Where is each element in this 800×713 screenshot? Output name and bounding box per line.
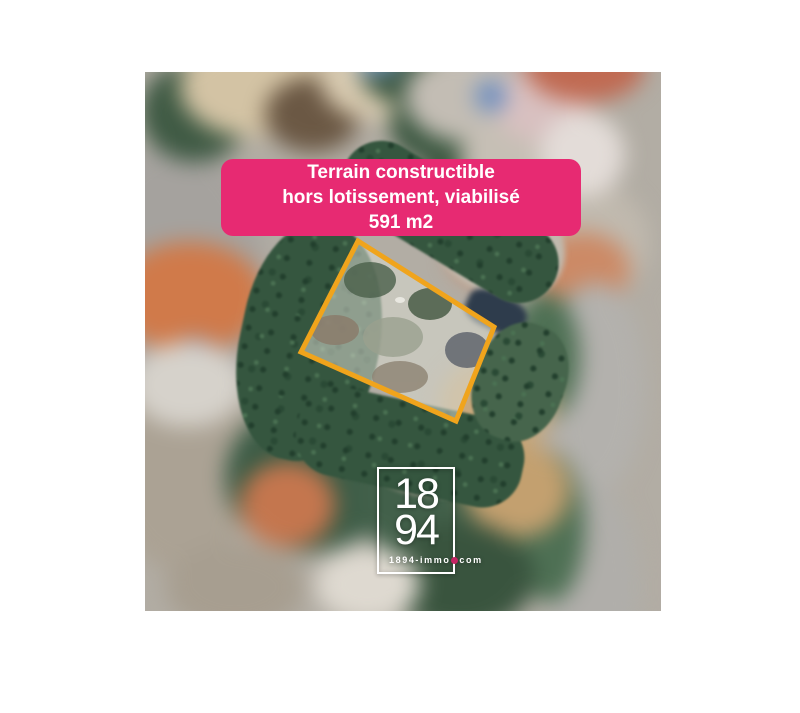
logo-digits-bottom: 94 bbox=[377, 512, 455, 548]
logo-1894: 18 94 1894-immocom bbox=[377, 467, 455, 574]
banner-line-1: Terrain constructible bbox=[307, 160, 495, 185]
banner-line-2: hors lotissement, viabilisé bbox=[282, 185, 520, 210]
banner-line-3: 591 m2 bbox=[369, 210, 433, 235]
info-banner: Terrain constructible hors lotissement, … bbox=[221, 159, 581, 236]
logo-website-prefix: 1894-immo bbox=[389, 555, 450, 565]
logo-website-dot-icon bbox=[451, 557, 458, 564]
logo-website-suffix: com bbox=[459, 555, 482, 565]
logo-website: 1894-immocom bbox=[389, 555, 483, 565]
logo-digits: 18 94 bbox=[377, 476, 455, 548]
listing-image: Terrain constructible hors lotissement, … bbox=[0, 0, 800, 713]
